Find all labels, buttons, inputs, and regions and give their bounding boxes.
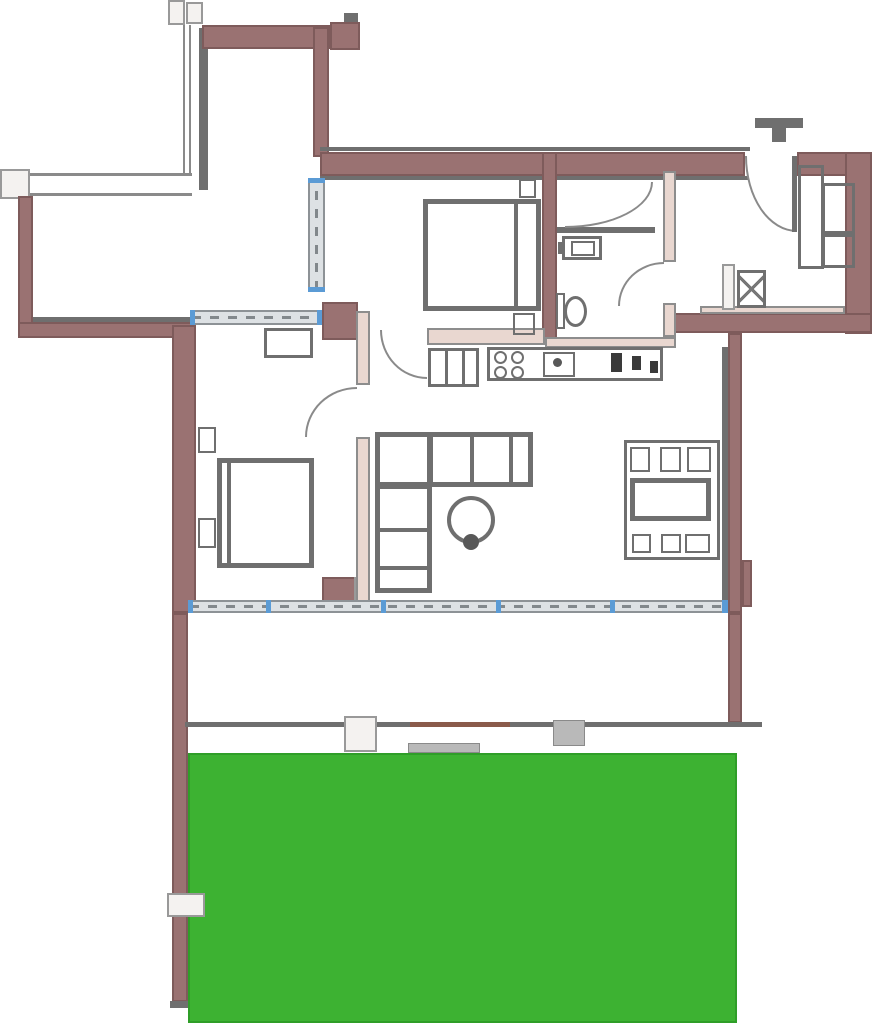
- window-tick: [381, 600, 386, 613]
- stove-burner: [494, 366, 507, 379]
- sofa-cushion-line: [429, 434, 433, 485]
- garden-step-white: [344, 716, 377, 752]
- window-tick: [190, 310, 195, 325]
- north-gate-leaf-1: [168, 0, 185, 25]
- hall-closet-box-2: [822, 234, 855, 268]
- wall-garden-west: [172, 613, 188, 1002]
- wall-hall-south: [663, 313, 872, 333]
- coffee-table-plant: [463, 534, 479, 550]
- bedroom-1-door-arc: [305, 387, 357, 437]
- hall-radiator: [722, 264, 735, 310]
- sofa-cushion-line: [509, 434, 513, 485]
- fridge-line: [462, 350, 465, 385]
- wall-west-upper: [313, 27, 329, 157]
- window-bed1-north: [190, 310, 322, 325]
- window-tick: [610, 600, 615, 613]
- bed-1-wardrobe: [264, 328, 313, 358]
- entry-doormat-stem: [772, 128, 786, 142]
- fridge: [428, 348, 479, 387]
- dining-chair: [687, 447, 711, 472]
- hall-closet-box-1: [822, 183, 855, 234]
- window-tick: [266, 600, 271, 613]
- sofa-cushion-line: [470, 434, 474, 485]
- pillar-bed1-north: [322, 302, 358, 340]
- wall-balcony-east: [728, 613, 742, 723]
- entrance-door-leaf: [792, 156, 797, 232]
- wall-living-east: [728, 333, 742, 613]
- window-tick: [496, 600, 501, 613]
- window-tick: [317, 310, 322, 325]
- wall-court-west: [18, 196, 33, 328]
- bathroom-door-lower-arc: [618, 262, 664, 306]
- pillar-northwest: [330, 22, 360, 50]
- bathroom-door-upper-arc: [565, 182, 653, 228]
- wall-top-main: [320, 152, 745, 176]
- garden-gate: [167, 893, 205, 917]
- courtyard-north-gray-wall: [199, 28, 208, 190]
- wall-top-northwest: [202, 25, 330, 49]
- bed-2: [423, 199, 541, 311]
- sofa-cushion-line: [377, 566, 430, 570]
- bed-1-nightstand-bottom: [198, 518, 216, 548]
- wall-bed2-bath: [542, 152, 557, 342]
- window-tick: [308, 287, 325, 292]
- divider-bathroom: [557, 227, 655, 233]
- garden-path: [408, 743, 480, 753]
- bedroom-2-door-arc: [380, 330, 427, 379]
- west-gate: [0, 169, 30, 199]
- counter-item: [650, 361, 658, 373]
- dining-chair: [661, 534, 681, 553]
- stove-burner: [511, 366, 524, 379]
- dining-table: [630, 478, 711, 521]
- entry-doormat: [755, 118, 803, 128]
- wall-bed1-west: [172, 325, 196, 613]
- dining-chair: [630, 447, 650, 472]
- bed-2-nightstand-top: [519, 179, 536, 198]
- dining-chair: [632, 534, 651, 553]
- window-tick: [722, 600, 728, 613]
- dining-chair: [660, 447, 681, 472]
- dining-chair: [685, 534, 710, 553]
- window-tick: [308, 178, 325, 183]
- fridge-line: [445, 350, 448, 385]
- bed-2-nightstand-bottom: [513, 313, 535, 335]
- west-fence: [183, 25, 191, 175]
- line-top-outer: [320, 147, 750, 151]
- wall-court-south: [18, 322, 192, 338]
- bed-1: [217, 458, 314, 568]
- line-court-south: [33, 317, 192, 322]
- sofa-cushion-line: [377, 485, 430, 489]
- pier-living-east: [742, 560, 752, 607]
- garden-lawn: [188, 753, 737, 1023]
- washing-machine: [737, 270, 766, 308]
- window-bed2-west: [308, 178, 325, 292]
- entrance-door-arc: [745, 156, 797, 232]
- floor-plan-canvas: [0, 0, 872, 1029]
- garden-step-gray: [553, 720, 585, 746]
- partition-bath-east-upper: [663, 171, 676, 262]
- sofa-cushion-line: [377, 528, 430, 532]
- balcony-edge-accent: [410, 722, 510, 727]
- kitchen-faucet: [553, 358, 562, 367]
- counter-item: [632, 356, 641, 370]
- toilet-bowl: [564, 296, 587, 327]
- stove-burner: [511, 351, 524, 364]
- pillar-northwest-cap: [344, 13, 358, 22]
- partition-bath-east-lower: [663, 303, 676, 337]
- partition-bed1-east-lower: [356, 437, 370, 613]
- bed-2-headboard-line: [514, 201, 518, 309]
- hall-closet: [798, 165, 824, 269]
- bathroom-faucet: [558, 242, 565, 254]
- bathroom-sink-basin: [571, 241, 595, 256]
- stove-burner: [494, 351, 507, 364]
- bed-1-pillow-line: [227, 460, 231, 566]
- north-gate-leaf-2: [186, 2, 203, 24]
- bed-1-nightstand-top: [198, 427, 216, 453]
- window-tick: [188, 600, 193, 613]
- counter-item: [611, 353, 622, 372]
- partition-bed1-east-upper: [356, 311, 370, 385]
- line-living-east: [722, 347, 728, 603]
